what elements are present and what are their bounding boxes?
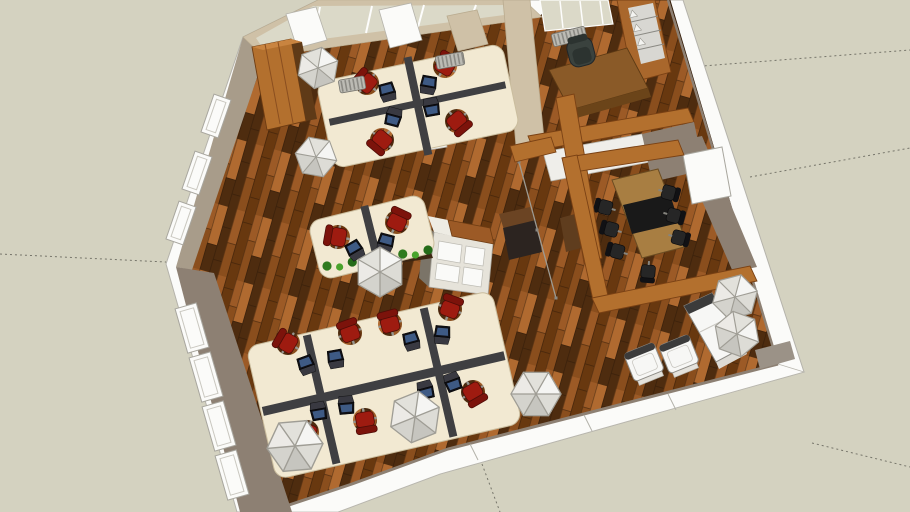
model-viewport[interactable]: Bird's-eye 3D model of an open-plan offi… bbox=[0, 0, 910, 512]
plant bbox=[423, 245, 432, 254]
conference-window bbox=[683, 147, 731, 204]
model-viewport-stage: Bird's-eye 3D model of an open-plan offi… bbox=[0, 0, 910, 512]
plant bbox=[336, 263, 343, 270]
plant bbox=[322, 261, 331, 270]
laptop bbox=[433, 325, 451, 344]
laptop bbox=[337, 395, 355, 414]
plant bbox=[412, 251, 419, 258]
plant bbox=[398, 249, 407, 258]
